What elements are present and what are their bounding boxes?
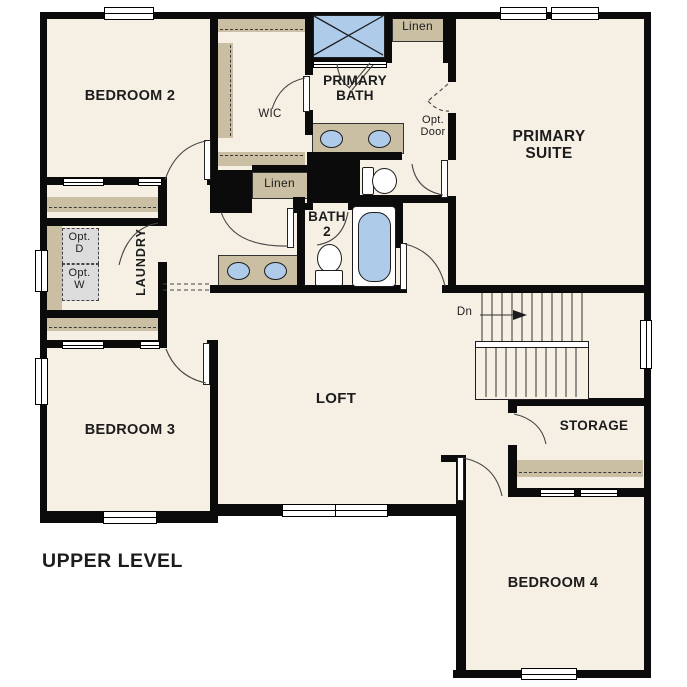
laundry-label: LAUNDRY: [134, 222, 148, 302]
wall-linen-hall-top: [252, 165, 307, 172]
window-suite-top-1: [500, 7, 547, 20]
wall-suite-bottom: [442, 285, 651, 293]
window-loft-bottom: [282, 504, 388, 517]
bedroom4-closet-slider-right: [580, 489, 618, 497]
primary-suite-label-line1: PRIMARY: [469, 128, 629, 145]
bath2-label-line1: BATH: [303, 209, 351, 224]
bedroom2-closet-slider-left: [63, 178, 104, 186]
floor-bedroom4-block: [456, 405, 651, 678]
wall-tub-right: [396, 203, 403, 248]
bath2-label-line2: 2: [303, 224, 351, 239]
bedroom3-door-leaf: [203, 343, 210, 385]
bath2-label: BATH 2: [303, 209, 351, 239]
shower: [313, 15, 385, 58]
bedroom4-closet-slider-left: [540, 489, 575, 497]
shower-glass-door: [313, 61, 387, 68]
bath2-toilet-tank: [315, 270, 343, 286]
stair-lower-flight: [475, 347, 589, 400]
window-bedroom3-bottom: [103, 511, 157, 524]
window-suite-top-2: [551, 7, 599, 20]
bedroom3-closet-slider-right: [140, 341, 160, 349]
wic-label: WIC: [245, 108, 295, 121]
primary-vanity-sink-right: [368, 130, 391, 148]
primary-bath-label-line1: PRIMARY: [305, 73, 405, 88]
wic-side-shelf: [218, 43, 233, 138]
loft-label: LOFT: [296, 391, 376, 408]
wall-wic-right-lower: [305, 110, 313, 135]
bedroom2-closet-slider-right: [138, 178, 162, 186]
wall-suite-left-a: [448, 12, 456, 82]
primary-toilet-bowl: [372, 168, 397, 194]
bath2-sink-right: [264, 262, 287, 280]
window-laundry-left: [35, 250, 48, 292]
opt-washer-label-line2: W: [62, 279, 97, 291]
bedroom2-closet-shelf: [47, 197, 158, 212]
suite-door-leaf: [400, 243, 407, 290]
opt-door-label-line2: Door: [407, 126, 459, 138]
primary-bath-label: PRIMARY BATH: [305, 73, 405, 103]
wic-bottom-shelf: [218, 152, 305, 166]
wall-storage-left-upper: [508, 398, 517, 413]
window-bedroom3-left: [35, 358, 48, 405]
bedroom3-closet-shelf: [47, 318, 158, 331]
wall-wic-right-upper: [305, 12, 313, 75]
wall-suite-left-c: [448, 196, 456, 285]
bedroom4-door-leaf: [457, 457, 464, 501]
floor-plan: BEDROOM 2 WIC Linen PRIMARY BATH Opt. Do…: [0, 0, 687, 687]
opt-dryer-label-line1: Opt.: [62, 231, 97, 243]
opt-door-label: Opt. Door: [407, 114, 459, 139]
bedroom3-closet-slider-left: [62, 341, 104, 349]
primary-wc-door-leaf: [441, 160, 448, 198]
bedroom4-closet-shelf: [517, 460, 643, 477]
window-bedroom4-bottom: [521, 668, 577, 680]
opt-door-label-line1: Opt.: [407, 114, 459, 126]
window-bedroom2-top: [104, 7, 154, 20]
primary-suite-label-line2: SUITE: [469, 145, 629, 162]
bathtub: [358, 212, 391, 282]
bath2-toilet-bowl: [317, 244, 342, 273]
primary-bath-label-line2: BATH: [305, 88, 405, 103]
opt-washer-label-line1: Opt.: [62, 267, 97, 279]
primary-vanity-sink-left: [320, 130, 343, 148]
storage-label: STORAGE: [544, 418, 644, 433]
plan-title: UPPER LEVEL: [42, 551, 212, 573]
wall-hall-block-left: [210, 170, 252, 213]
opt-dryer-label-line2: D: [62, 243, 97, 255]
opt-washer-label: Opt. W: [62, 267, 97, 292]
primary-suite-label: PRIMARY SUITE: [469, 128, 629, 163]
wall-bedroom3-right: [210, 340, 218, 511]
wall-shower-linen-divider: [385, 12, 392, 63]
bedroom2-label: BEDROOM 2: [50, 88, 210, 104]
bedroom4-label: BEDROOM 4: [473, 575, 633, 591]
wall-plumbing-chase: [307, 160, 360, 203]
bath2-hall-door-leaf: [287, 208, 294, 248]
stairs-down-label: Dn: [452, 306, 477, 319]
bedroom2-door-leaf: [204, 140, 211, 180]
window-stairs-right: [640, 320, 652, 369]
bath2-sink-left: [227, 262, 250, 280]
wall-laundry-bottom: [40, 310, 167, 318]
opt-dryer-label: Opt. D: [62, 231, 97, 256]
wic-top-shelf: [218, 19, 305, 32]
linen-upper-label: Linen: [392, 20, 443, 33]
bedroom3-label: BEDROOM 3: [50, 422, 210, 438]
wall-wc-bottom: [360, 195, 448, 203]
linen-hall-label: Linen: [252, 177, 307, 190]
wall-hall-left-lower: [158, 262, 167, 348]
wall-bedroom2-right: [210, 12, 218, 185]
laundry-counter: [47, 218, 62, 310]
wall-under-vanity: [307, 152, 402, 160]
